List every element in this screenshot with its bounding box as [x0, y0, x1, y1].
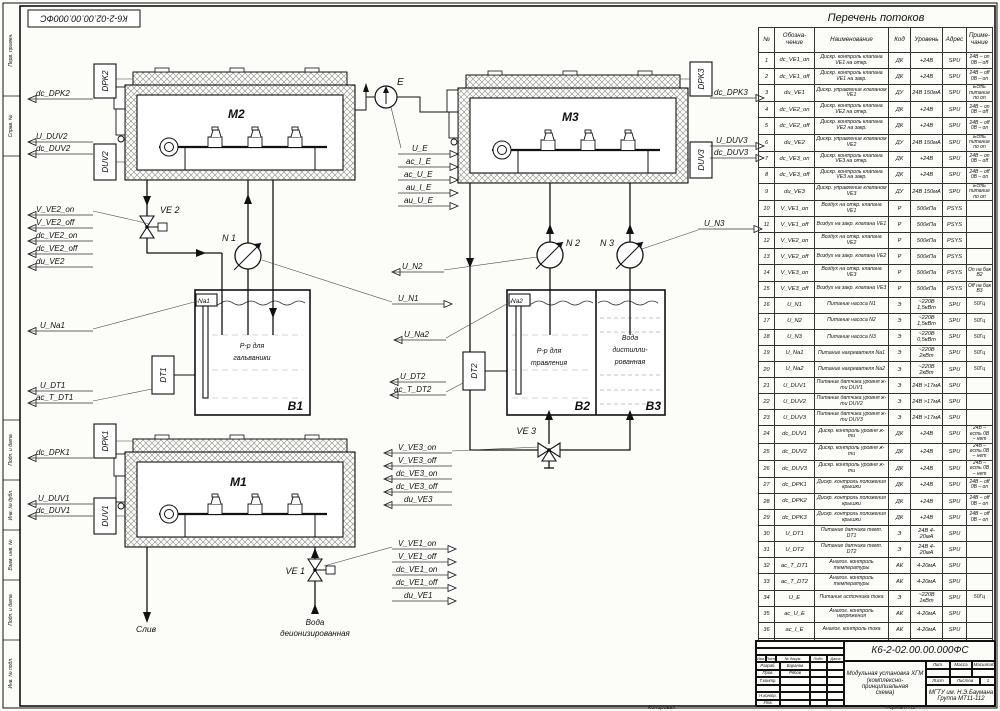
pump-n2: N 2 [536, 238, 580, 269]
flows-table-header: № Обозна- чение Наименование Код Уровень… [759, 28, 993, 53]
tank-b2-b3: Р-р для травления Вода дистилли- рованна… [507, 290, 665, 415]
svg-text:Р-р для: Р-р для [240, 342, 265, 350]
svg-text:Инв. № подл.: Инв. № подл. [8, 657, 14, 688]
svg-text:ac_I_E: ac_I_E [406, 157, 432, 166]
svg-text:DUV3: DUV3 [697, 149, 706, 171]
flow-row: 9 du_VE3 Дискр. управление клапаном VE3 … [759, 183, 993, 200]
flow-row: 8 dc_VE3_off Дискр. контроль клапана VE3… [759, 167, 993, 183]
valve-ve2-label: VE 2 [160, 205, 180, 215]
pump-n3-label: N 3 [600, 238, 614, 248]
doc-title: Модульная установка ХГМ (комплексно-прин… [844, 661, 926, 707]
format-label: Формат А3 [885, 705, 915, 711]
di-water-label-1: Вода [306, 618, 325, 627]
drain-label: Слив [136, 624, 157, 634]
svg-text:Подп. и дата: Подп. и дата [8, 434, 14, 466]
doc-number: К6-2-02.00.00.000ФС [844, 641, 996, 661]
flow-row: 16 U_N1 Питание насоса N1 Э ~220В 1,5кВт… [759, 297, 993, 313]
svg-text:U_Na1: U_Na1 [40, 321, 65, 330]
valve-ve2[interactable]: VE 2 [140, 205, 180, 238]
module-m3-label: M3 [562, 110, 579, 124]
svg-text:DT2: DT2 [470, 363, 479, 379]
svg-text:Взам. инв. №: Взам. инв. № [8, 539, 14, 571]
valve-ve1-label: VE 1 [285, 566, 305, 576]
signal-labels-ve2: V_VE2_on V_VE2_off dc_VE2_on dc_VE2_off … [28, 205, 150, 271]
flow-row: 14 V_VE3_on Воздух на откр. клапана VE3 … [759, 265, 993, 281]
org-name: МГТУ им. Н.Э.Баумана Группа МТ11-112 [926, 685, 996, 707]
tank-b2-label: B2 [575, 399, 591, 413]
signal-labels-m1: dc_DPK1 U_DUV1 dc_DUV1 [28, 448, 93, 520]
pump-n3: N 3 [600, 238, 643, 269]
signal-u-duv2: U_DUV2 [36, 132, 68, 141]
flow-row: 30 U_DT1 Питание датчика темп. DT1 Э 24В… [759, 526, 993, 542]
svg-text:V_VE1_off: V_VE1_off [398, 552, 437, 561]
svg-text:V_VE3_off: V_VE3_off [398, 456, 437, 465]
top-left-stamp: К6-2-02.00.00.000ФС [28, 10, 140, 27]
svg-text:au_U_E: au_U_E [404, 196, 434, 205]
svg-text:dc_DUV3: dc_DUV3 [714, 148, 749, 157]
temp-sensor-dt2: DT2 [463, 352, 507, 390]
temp-sensor-dt1: DT1 [152, 356, 195, 394]
svg-text:dc_VE2_off: dc_VE2_off [36, 244, 78, 253]
svg-text:dc_VE3_off: dc_VE3_off [396, 482, 438, 491]
svg-text:ac_T_DT1: ac_T_DT1 [36, 393, 73, 402]
svg-text:du_VE2: du_VE2 [36, 257, 65, 266]
svg-text:dc_VE1_on: dc_VE1_on [396, 565, 438, 574]
svg-text:травления: травления [531, 360, 568, 367]
svg-text:U_DUV1: U_DUV1 [38, 494, 70, 503]
svg-text:К6-2-02.00.00.000ФС: К6-2-02.00.00.000ФС [40, 14, 128, 24]
svg-text:au_I_E: au_I_E [406, 183, 432, 192]
svg-text:dc_DPK3: dc_DPK3 [714, 88, 748, 97]
flow-row: 6 du_VE2 Дискр. управление клапаном VE2 … [759, 134, 993, 151]
flow-row: 2 dc_VE1_off Дискр. контроль клапана VE1… [759, 69, 993, 85]
pump-n2-label: N 2 [566, 238, 580, 248]
tank-b1: Р-р для гальваники B1 Na1 [195, 290, 310, 415]
flows-table-title: Перечень потоков [758, 12, 994, 24]
flow-row: 29 dc_DPK3 Дискр. контроль положения кры… [759, 510, 993, 526]
di-water-label-2: деионизированная [280, 629, 350, 638]
module-m1-label: M1 [230, 475, 247, 489]
svg-text:DUV2: DUV2 [101, 151, 110, 173]
svg-text:du_VE3: du_VE3 [404, 495, 433, 504]
svg-text:U_N3: U_N3 [704, 219, 725, 228]
valve-ve3-label: VE 3 [516, 426, 536, 436]
svg-text:dc_DUV1: dc_DUV1 [36, 506, 70, 515]
flow-row: 31 U_DT2 Питание датчика темп. DT2 Э 24В… [759, 542, 993, 558]
flow-row: 20 U_Na2 Питание нагревателя Na2 Э ~220В… [759, 362, 993, 378]
flow-row: 28 dc_DPK2 Дискр. контроль положения кры… [759, 494, 993, 510]
module-m2: M2 [114, 68, 355, 180]
signal-labels-ve3: V_VE3_on V_VE3_off dc_VE3_on dc_VE3_off … [384, 443, 538, 509]
svg-text:Инв. № дубл.: Инв. № дубл. [8, 490, 14, 521]
flow-row: 3 du_VE1 Дискр. управление клапаном VE1 … [759, 85, 993, 102]
svg-text:U_Na2: U_Na2 [404, 330, 429, 339]
svg-text:DPK1: DPK1 [101, 431, 110, 452]
svg-text:U_DUV3: U_DUV3 [716, 136, 748, 145]
flow-row: 19 U_Na1 Питание нагревателя Na1 Э ~220В… [759, 345, 993, 361]
svg-text:V_VE3_on: V_VE3_on [398, 443, 437, 452]
flow-row: 5 dc_VE2_off Дискр. контроль клапана VE2… [759, 118, 993, 134]
module-m2-label: M2 [228, 107, 245, 121]
flow-row: 7 dc_VE3_on Дискр. контроль клапана VE3 … [759, 151, 993, 167]
flow-row: 32 ac_T_DT1 Аналог. контроль температуры… [759, 558, 993, 574]
flow-row: 4 dc_VE2_on Дискр. контроль клапана VE2 … [759, 102, 993, 118]
svg-text:DT1: DT1 [159, 367, 168, 382]
svg-text:dc_DPK1: dc_DPK1 [36, 448, 70, 457]
svg-text:Справ. №: Справ. № [8, 114, 14, 137]
svg-text:U_E: U_E [412, 144, 428, 153]
valve-ve1[interactable]: VE 1 [285, 559, 335, 581]
current-source-e: E [355, 77, 458, 148]
flow-row: 13 V_VE2_off Воздух на закр. клапана VE2… [759, 249, 993, 265]
svg-text:дистилли-: дистилли- [612, 346, 648, 354]
source-e-label: E [397, 77, 404, 88]
svg-text:U_N2: U_N2 [402, 262, 423, 271]
flow-row: 34 U_E Питание источника тока Э ~220В 1к… [759, 590, 993, 606]
svg-text:ac_T_DT2: ac_T_DT2 [394, 385, 432, 394]
svg-text:ac_U_E: ac_U_E [404, 170, 433, 179]
heater-na1-label: Na1 [198, 298, 210, 305]
svg-text:U_DT1: U_DT1 [40, 381, 65, 390]
svg-text:гальваники: гальваники [233, 355, 270, 362]
svg-text:рованная: рованная [614, 359, 646, 366]
flow-row: 35 ac_U_E Аналог. контроль напряжения АК… [759, 606, 993, 622]
svg-text:V_VE1_on: V_VE1_on [398, 539, 437, 548]
drawing-sheet: Перв. примен. Справ. № Подп. и дата Инв.… [0, 0, 1000, 711]
flow-row: 33 ac_T_DT2 Аналог. контроль температуры… [759, 574, 993, 590]
frame-strip-labels: Перв. примен. Справ. № Подп. и дата Инв.… [8, 33, 14, 688]
flow-row: 17 U_N2 Питание насоса N2 Э ~220В 1,5кВт… [759, 313, 993, 329]
svg-text:dc_VE1_off: dc_VE1_off [396, 578, 438, 587]
svg-text:Вода: Вода [622, 334, 638, 342]
module-m3: M3 [447, 71, 688, 183]
pump-n1: N 1 [222, 233, 261, 270]
signal-dc-duv2: dc_DUV2 [36, 144, 71, 153]
flow-row: 27 dc_DPK1 Дискр. контроль положения кры… [759, 477, 993, 493]
flow-row: 15 V_VE3_off Воздух на закр. клапана VE3… [759, 281, 993, 297]
flow-row: 1 dc_VE1_on Дискр. контроль клапана VE1 … [759, 53, 993, 69]
flow-row: 18 U_N3 Питание насоса N3 Э ~220В 0,5кВт… [759, 329, 993, 345]
signal-labels-m2: dc_DPK2 U_DUV2 dc_DUV2 [28, 89, 93, 158]
flow-row: 36 ac_I_E Аналог. контроль тока АК 4-20м… [759, 622, 993, 638]
svg-text:V_VE2_off: V_VE2_off [36, 218, 75, 227]
svg-text:V_VE2_on: V_VE2_on [36, 205, 75, 214]
title-block: К6-2-02.00.00.000ФС Модульная установка … [755, 640, 995, 706]
valve-ve3[interactable]: VE 3 [516, 426, 560, 461]
flow-row: 25 dc_DUV2 Дискр. контроль уровня ж-ти Д… [759, 443, 993, 460]
flow-row: 21 U_DUV1 Питание датчика уровня ж-ти DU… [759, 378, 993, 394]
svg-text:dc_VE2_on: dc_VE2_on [36, 231, 78, 240]
svg-text:dc_VE3_on: dc_VE3_on [396, 469, 438, 478]
signal-labels-ve1: V_VE1_on V_VE1_off dc_VE1_on dc_VE1_off … [324, 539, 456, 605]
svg-text:Подп. и дата: Подп. и дата [8, 594, 14, 626]
svg-text:DUV1: DUV1 [101, 505, 110, 526]
flow-row: 24 dc_DUV1 Дискр. контроль уровня ж-ти Д… [759, 426, 993, 443]
copied-label: Копировал [648, 705, 675, 711]
flow-row: 12 V_VE2_on Воздух на откр. клапана VE2 … [759, 233, 993, 249]
svg-text:Р-р для: Р-р для [537, 347, 562, 355]
svg-text:DPK2: DPK2 [101, 70, 110, 91]
module-m1: M1 [114, 435, 355, 547]
signal-dc-dpk2: dc_DPK2 [36, 89, 70, 98]
flow-row: 22 U_DUV2 Питание датчика уровня ж-ти DU… [759, 394, 993, 410]
svg-text:DPK3: DPK3 [697, 68, 706, 89]
heater-na2-label: Na2 [511, 298, 523, 305]
flow-row: 23 U_DUV3 Питание датчика уровня ж-ти DU… [759, 410, 993, 426]
svg-text:du_VE1: du_VE1 [404, 591, 432, 600]
signal-labels-e: U_E ac_I_E ac_U_E au_I_E au_U_E [398, 144, 458, 210]
flow-row: 10 V_VE1_on Воздух на откр. клапана VE1 … [759, 201, 993, 217]
tank-b3-label: B3 [646, 399, 662, 413]
flow-row: 11 V_VE1_off Воздух на закр. клапана VE1… [759, 217, 993, 233]
tank-b1-label: B1 [288, 399, 304, 413]
flows-table: Перечень потоков № Обозна- чение Наимено… [758, 12, 994, 671]
pump-n1-label: N 1 [222, 233, 236, 243]
external-flows: Слив Вода деионизированная [136, 618, 351, 638]
flow-row: 26 dc_DUV3 Дискр. контроль уровня ж-ти Д… [759, 460, 993, 477]
svg-text:U_DT2: U_DT2 [400, 372, 426, 381]
svg-text:U_N1: U_N1 [398, 294, 418, 303]
svg-text:Перв. примен.: Перв. примен. [8, 33, 14, 66]
